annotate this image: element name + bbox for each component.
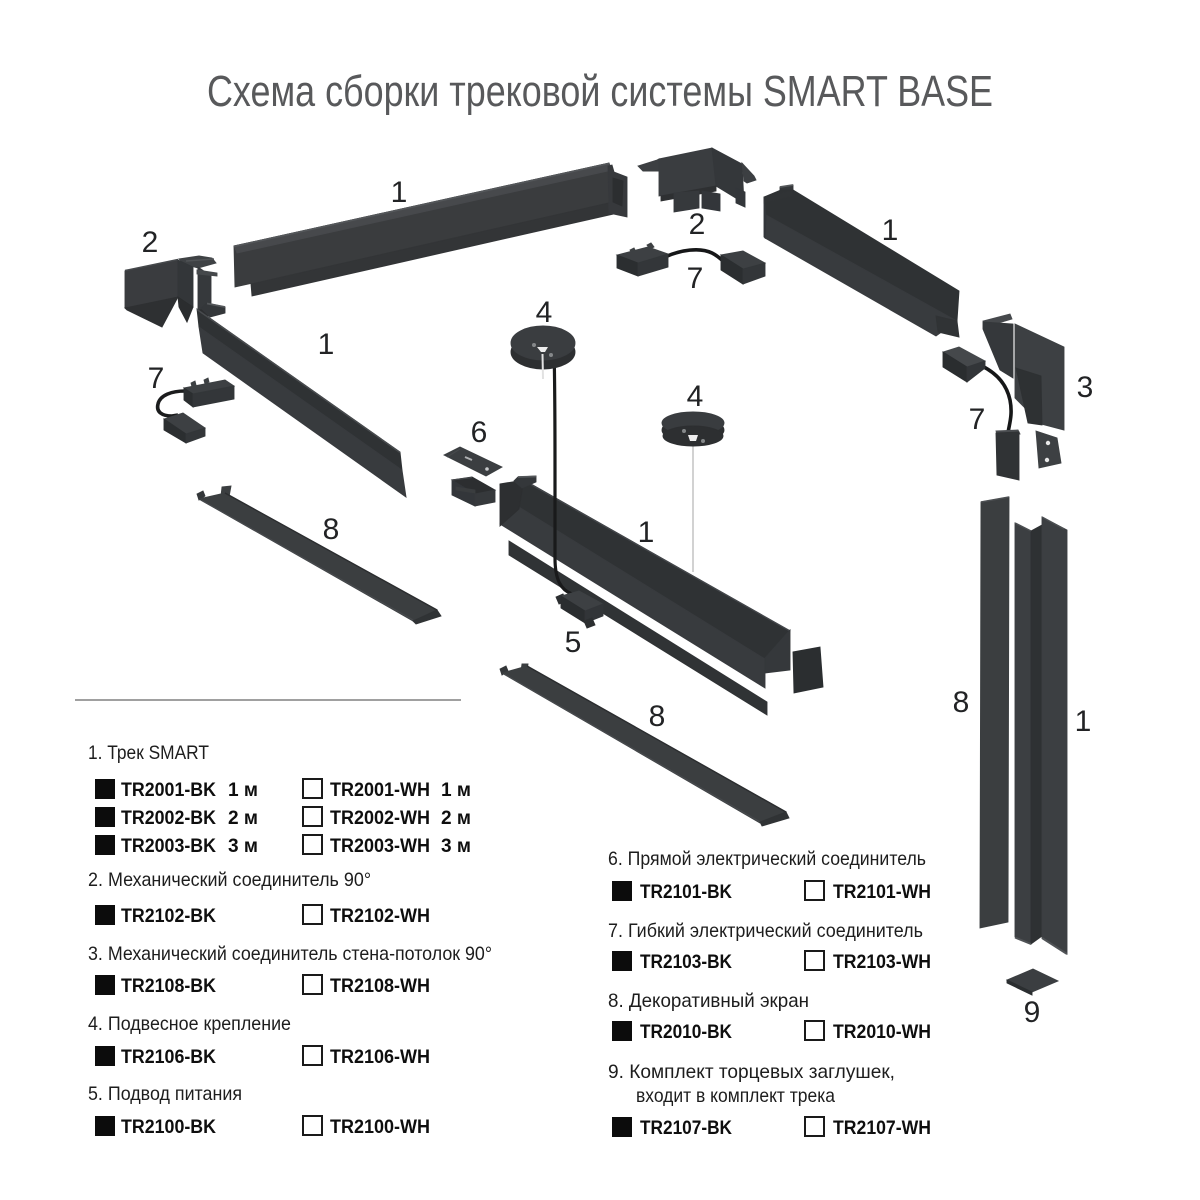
svg-text:2 м: 2 м — [441, 808, 471, 829]
svg-text:TR2101-BK: TR2101-BK — [640, 882, 732, 903]
svg-text:6. Прямой электрический соеди: 6. Прямой электрический соединитель — [608, 848, 926, 870]
svg-text:9: 9 — [1024, 996, 1041, 1029]
svg-text:TR2010-BK: TR2010-BK — [640, 1022, 732, 1043]
svg-text:6: 6 — [471, 416, 488, 449]
svg-text:TR2001-WH: TR2001-WH — [330, 780, 430, 801]
svg-text:1 м: 1 м — [441, 780, 471, 801]
svg-text:1: 1 — [391, 176, 408, 209]
svg-text:2. Механический соединитель 9: 2. Механический соединитель 90° — [88, 869, 371, 891]
svg-text:3: 3 — [1077, 371, 1094, 404]
svg-text:3 м: 3 м — [441, 836, 471, 857]
svg-text:2: 2 — [142, 226, 159, 259]
svg-text:4: 4 — [687, 380, 704, 413]
svg-text:TR2106-WH: TR2106-WH — [330, 1047, 430, 1068]
svg-text:5. Подвод питания: 5. Подвод питания — [88, 1083, 242, 1105]
svg-text:TR2107-WH: TR2107-WH — [833, 1118, 931, 1139]
svg-text:TR2003-BK: TR2003-BK — [121, 836, 216, 857]
svg-text:TR2003-WH: TR2003-WH — [330, 836, 430, 857]
svg-text:TR2002-BK: TR2002-BK — [121, 808, 216, 829]
svg-text:TR2108-WH: TR2108-WH — [330, 976, 430, 997]
svg-text:8. Декоративный экран: 8. Декоративный экран — [608, 990, 809, 1012]
svg-text:TR2106-BK: TR2106-BK — [121, 1047, 216, 1068]
svg-text:TR2107-BK: TR2107-BK — [640, 1118, 732, 1139]
svg-text:7: 7 — [687, 262, 704, 295]
svg-text:1: 1 — [638, 516, 655, 549]
svg-text:1: 1 — [882, 214, 899, 247]
svg-text:5: 5 — [565, 626, 582, 659]
svg-text:8: 8 — [323, 513, 340, 546]
svg-text:4. Подвесное крепление: 4. Подвесное крепление — [88, 1013, 291, 1035]
svg-text:1. Трек SMART: 1. Трек SMART — [88, 742, 209, 764]
svg-text:7: 7 — [148, 362, 165, 395]
svg-text:TR2010-WH: TR2010-WH — [833, 1022, 931, 1043]
svg-text:TR2103-WH: TR2103-WH — [833, 952, 931, 973]
svg-text:Схема сборки трековой системы: Схема сборки трековой системы SMART BASE — [207, 67, 993, 116]
svg-text:3 м: 3 м — [228, 836, 258, 857]
svg-text:TR2108-BK: TR2108-BK — [121, 976, 216, 997]
svg-text:2 м: 2 м — [228, 808, 258, 829]
svg-text:TR2102-WH: TR2102-WH — [330, 906, 430, 927]
svg-text:8: 8 — [649, 700, 666, 733]
svg-text:1 м: 1 м — [228, 780, 258, 801]
svg-text:TR2103-BK: TR2103-BK — [640, 952, 732, 973]
svg-text:7: 7 — [969, 403, 986, 436]
svg-text:TR2100-BK: TR2100-BK — [121, 1117, 216, 1138]
svg-text:TR2101-WH: TR2101-WH — [833, 882, 931, 903]
svg-text:1: 1 — [1075, 705, 1092, 738]
svg-text:2: 2 — [689, 208, 706, 241]
svg-text:8: 8 — [953, 686, 970, 719]
svg-text:7. Гибкий электрический соеди: 7. Гибкий электрический соединитель — [608, 920, 923, 942]
svg-text:4: 4 — [536, 296, 553, 329]
svg-text:9. Комплект торцевых заглушек: 9. Комплект торцевых заглушек, — [608, 1061, 895, 1083]
svg-text:TR2001-BK: TR2001-BK — [121, 780, 216, 801]
svg-text:3. Механический соединитель с: 3. Механический соединитель стена-потоло… — [88, 943, 492, 965]
svg-text:1: 1 — [318, 328, 335, 361]
svg-text:TR2100-WH: TR2100-WH — [330, 1117, 430, 1138]
svg-text:входит в комплект трека: входит в комплект трека — [636, 1085, 835, 1107]
svg-text:TR2102-BK: TR2102-BK — [121, 906, 216, 927]
svg-text:TR2002-WH: TR2002-WH — [330, 808, 430, 829]
